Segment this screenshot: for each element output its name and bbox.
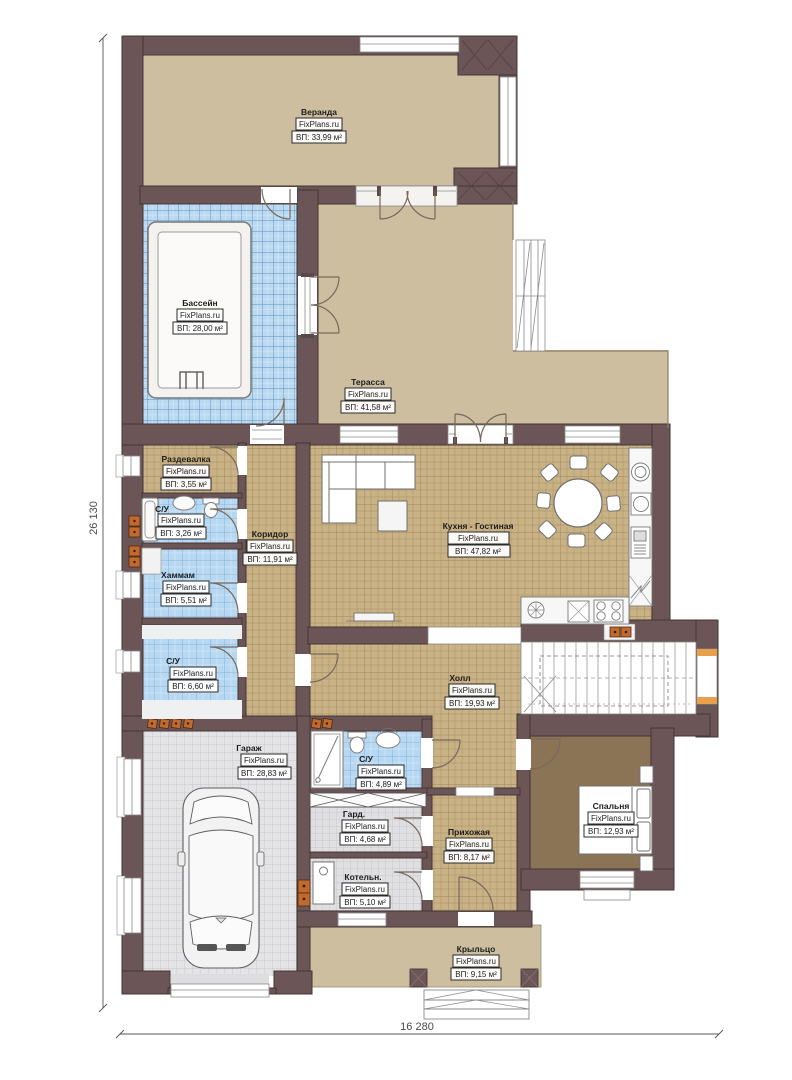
svg-text:FixPlans.ru: FixPlans.ru	[449, 840, 489, 849]
svg-text:FixPlans.ru: FixPlans.ru	[250, 542, 290, 551]
svg-text:Терасса: Терасса	[351, 377, 385, 387]
svg-text:Кухня - Гостиная: Кухня - Гостиная	[443, 521, 514, 531]
svg-text:Гард.: Гард.	[343, 809, 365, 819]
svg-text:ВП: 33,99 м²: ВП: 33,99 м²	[296, 133, 342, 142]
svg-text:ВП: 5,51 м²: ВП: 5,51 м²	[165, 596, 207, 605]
svg-text:FixPlans.ru: FixPlans.ru	[452, 686, 492, 695]
svg-text:С/У: С/У	[359, 754, 374, 764]
svg-text:Бассейн: Бассейн	[182, 298, 217, 308]
svg-text:Хаммам: Хаммам	[161, 570, 195, 580]
svg-text:FixPlans.ru: FixPlans.ru	[348, 390, 388, 399]
svg-text:ВП: 9,15 м²: ВП: 9,15 м²	[455, 970, 497, 979]
svg-text:ВП: 12,93 м²: ВП: 12,93 м²	[588, 827, 634, 836]
svg-text:Прихожая: Прихожая	[448, 827, 490, 837]
svg-text:ВП: 28,00 м²: ВП: 28,00 м²	[177, 324, 223, 333]
svg-text:ВП: 41,58 м²: ВП: 41,58 м²	[345, 403, 391, 412]
svg-text:ВП: 3,26 м²: ВП: 3,26 м²	[160, 529, 202, 538]
svg-text:ВП: 28,83 м²: ВП: 28,83 м²	[241, 769, 287, 778]
svg-text:С/У: С/У	[155, 504, 170, 514]
svg-text:FixPlans.ru: FixPlans.ru	[173, 669, 213, 678]
svg-text:ВП: 11,91 м²: ВП: 11,91 м²	[247, 555, 293, 564]
svg-text:ВП: 3,55 м²: ВП: 3,55 м²	[165, 480, 207, 489]
svg-text:ВП: 5,10 м²: ВП: 5,10 м²	[344, 898, 386, 907]
svg-text:26 130: 26 130	[88, 501, 100, 535]
svg-text:ВП: 4,89 м²: ВП: 4,89 м²	[360, 780, 402, 789]
svg-text:Крыльцо: Крыльцо	[457, 944, 496, 954]
svg-text:ВП: 47,82 м²: ВП: 47,82 м²	[455, 547, 501, 556]
svg-text:Гараж: Гараж	[236, 743, 262, 753]
svg-text:Холл: Холл	[449, 673, 470, 683]
svg-text:FixPlans.ru: FixPlans.ru	[591, 814, 631, 823]
svg-text:ВП: 8,17 м²: ВП: 8,17 м²	[448, 853, 490, 862]
svg-text:FixPlans.ru: FixPlans.ru	[456, 957, 496, 966]
svg-text:FixPlans.ru: FixPlans.ru	[161, 516, 201, 525]
svg-text:С/У: С/У	[166, 656, 181, 666]
svg-text:FixPlans.ru: FixPlans.ru	[166, 583, 206, 592]
svg-text:Спальня: Спальня	[593, 801, 630, 811]
svg-text:FixPlans.ru: FixPlans.ru	[166, 467, 206, 476]
svg-text:FixPlans.ru: FixPlans.ru	[345, 885, 385, 894]
svg-text:ВП: 6,60 м²: ВП: 6,60 м²	[172, 682, 214, 691]
svg-text:FixPlans.ru: FixPlans.ru	[361, 767, 401, 776]
svg-text:FixPlans.ru: FixPlans.ru	[299, 120, 339, 129]
svg-text:16 280: 16 280	[400, 1021, 434, 1033]
svg-text:Коридор: Коридор	[252, 529, 289, 539]
svg-text:Котельн.: Котельн.	[344, 872, 381, 882]
svg-text:ВП: 4,68 м²: ВП: 4,68 м²	[344, 835, 386, 844]
svg-text:ВП: 19,93 м²: ВП: 19,93 м²	[449, 699, 495, 708]
svg-text:FixPlans.ru: FixPlans.ru	[244, 756, 284, 765]
svg-text:Раздевалка: Раздевалка	[162, 454, 211, 464]
svg-text:FixPlans.ru: FixPlans.ru	[180, 311, 220, 320]
svg-text:FixPlans.ru: FixPlans.ru	[345, 822, 385, 831]
svg-text:Веранда: Веранда	[301, 107, 337, 117]
svg-text:FixPlans.ru: FixPlans.ru	[458, 534, 498, 543]
